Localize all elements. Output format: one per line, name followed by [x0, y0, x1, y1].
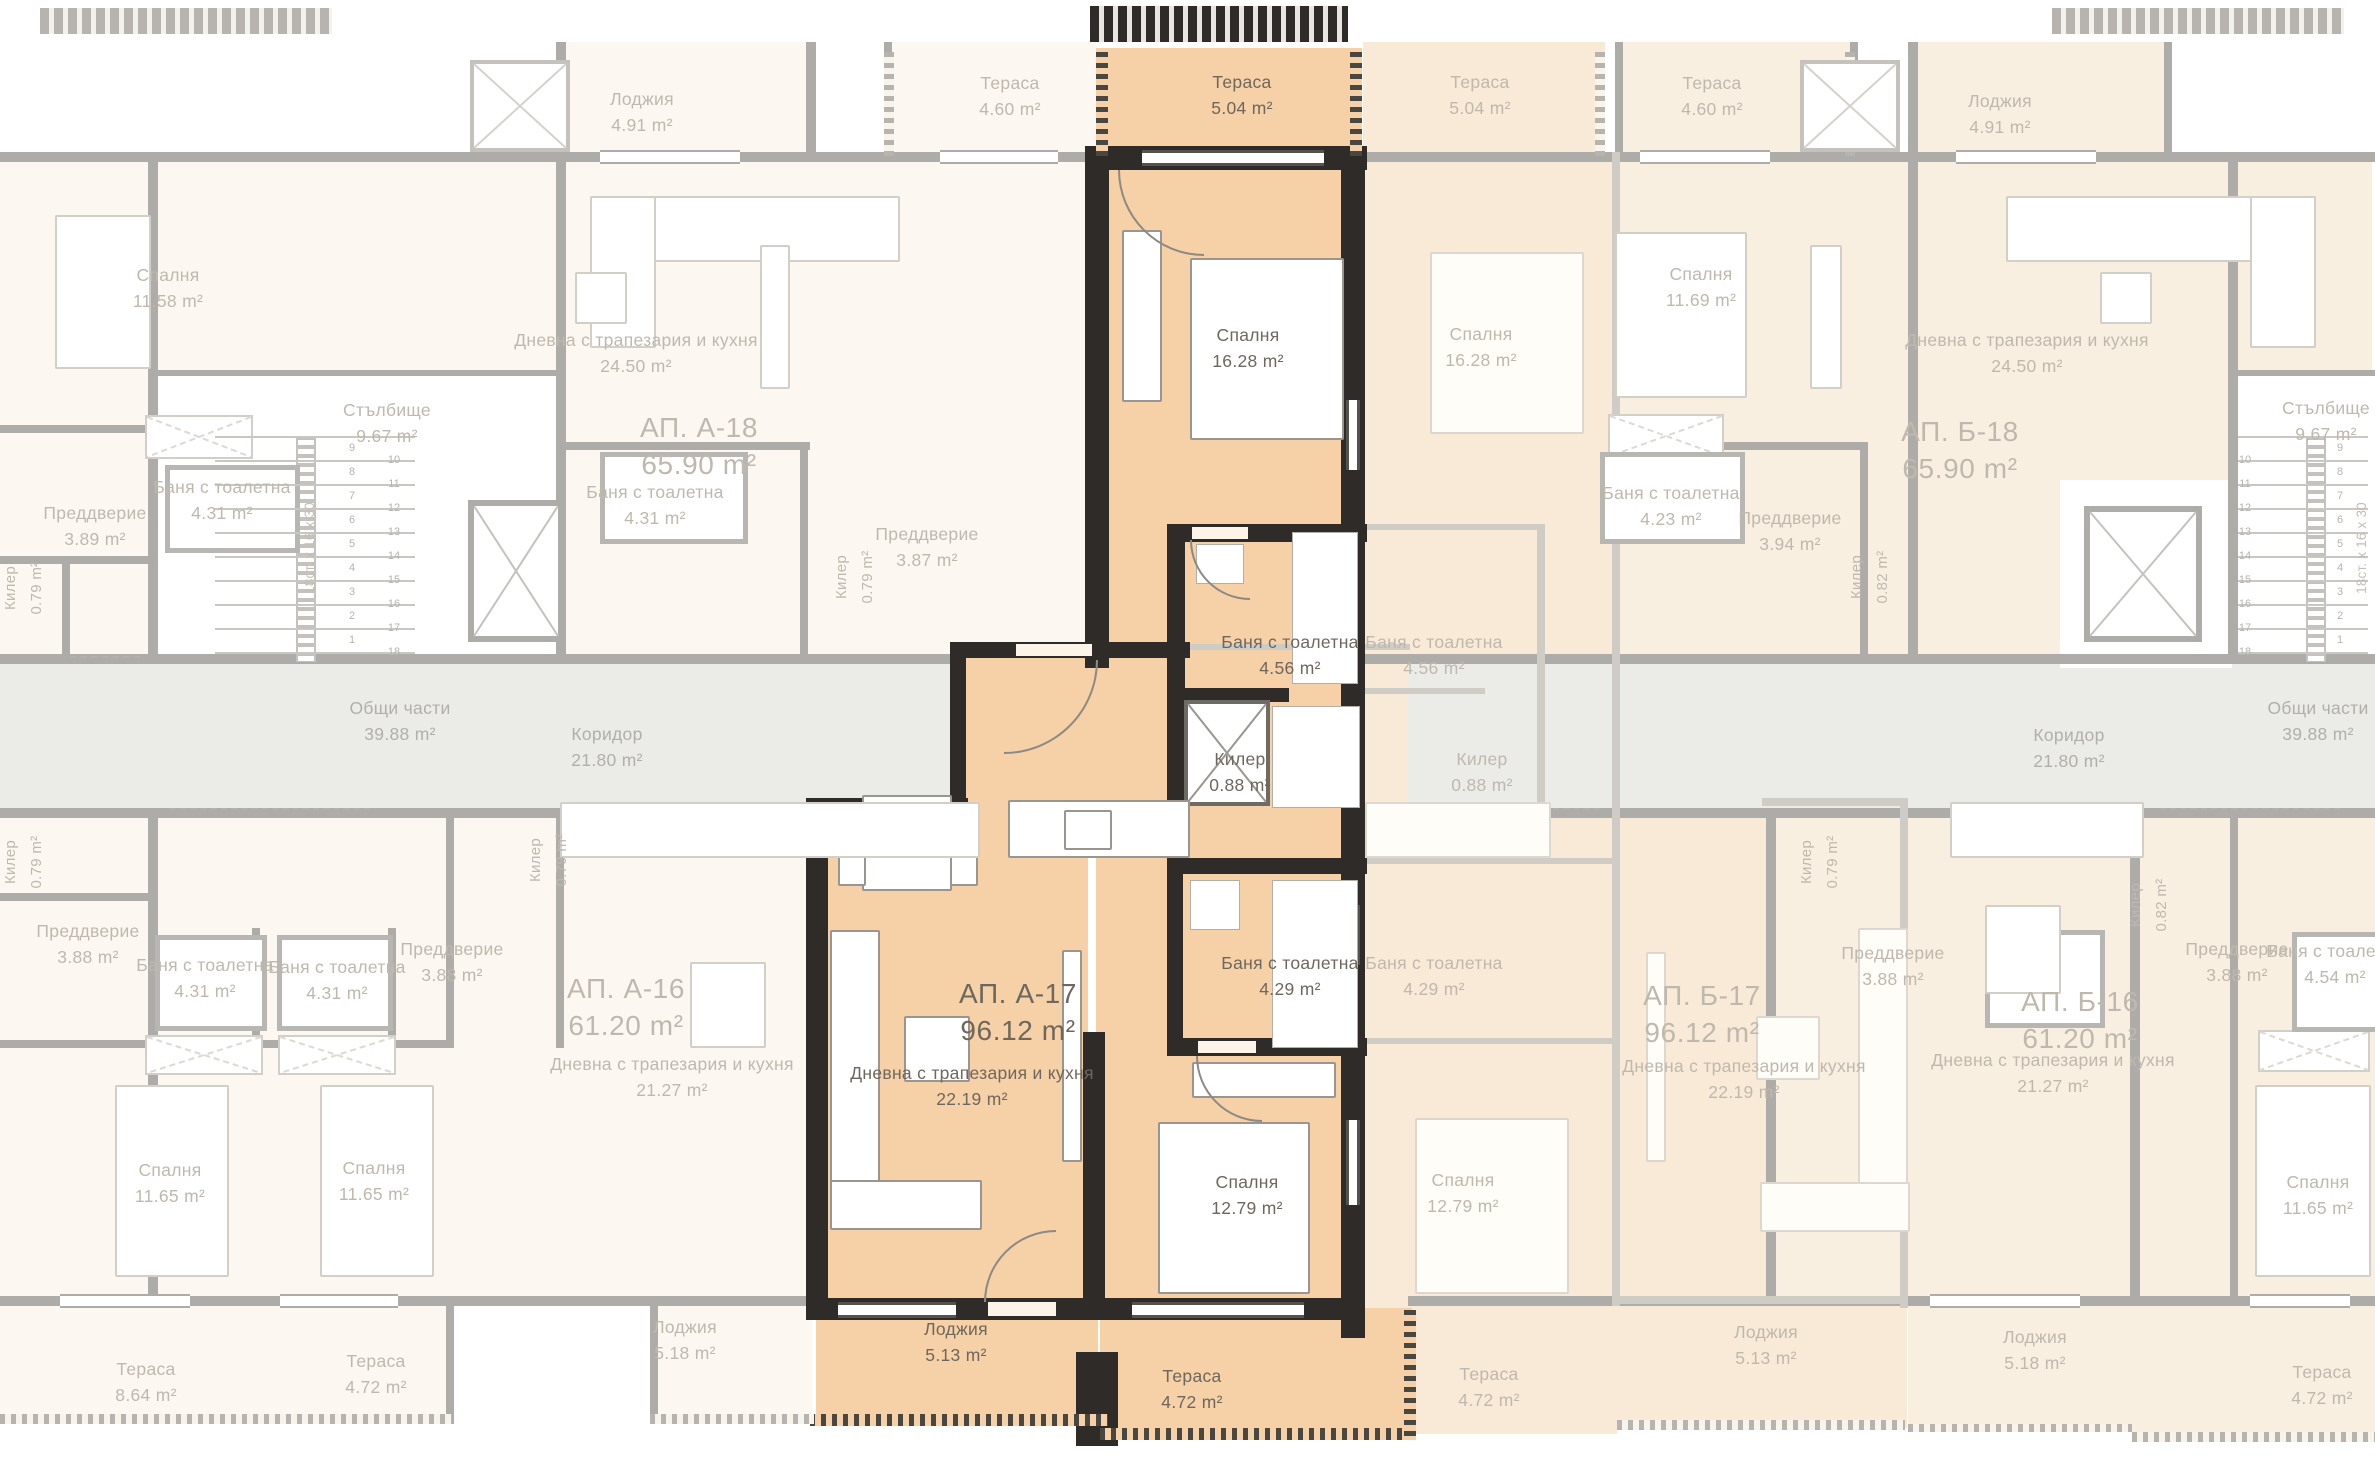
stair-tread: [2238, 628, 2368, 630]
room-label: АП. А-1661.20 m²: [567, 970, 685, 1044]
window: [60, 1294, 190, 1308]
stair-step-number: 11: [2239, 478, 2250, 490]
wardrobe: [2258, 1030, 2370, 1072]
corridor-band-left: [0, 662, 952, 810]
stair-step-number: 5: [2337, 538, 2343, 550]
room-label: Спалня11.58 m²: [133, 262, 203, 314]
room-label: Килер0.82 m²: [2123, 879, 2175, 932]
region-ghost-entry: [1365, 662, 1410, 810]
stair-step-number: 15: [2239, 574, 2251, 586]
stair-step-number: 17: [388, 622, 400, 634]
elevator-shaft: [468, 500, 564, 642]
stair-dimension-note: 18ст. х 16 х 30: [2349, 502, 2375, 594]
room-label: Дневна с трапезария и кухня22.19 m²: [850, 1060, 1094, 1112]
floor-plan-canvas: 9876543211011121314151617189876543211011…: [0, 0, 2375, 1484]
stair-tread: [215, 604, 415, 606]
room-label: Баня с тоалетна4.31 m²: [586, 479, 723, 531]
shaft: [470, 60, 570, 152]
room-label: АП. Б-1865.90 m²: [1901, 413, 2019, 487]
stair-step-number: 2: [349, 610, 355, 622]
room-label: АП. А-1796.12 m²: [959, 975, 1077, 1049]
room-label: Коридор21.80 m²: [2033, 722, 2104, 774]
room-label: Преддверие3.94 m²: [1738, 505, 1841, 557]
room-label: Лоджия5.18 m²: [2003, 1324, 2067, 1376]
room-label: Стълбище9.67 m²: [343, 397, 431, 449]
room-label: Тераса4.72 m²: [1161, 1363, 1222, 1415]
room-label: Баня с тоалетна4.29 m²: [1221, 950, 1358, 1002]
room-label: Тераса4.60 m²: [1681, 70, 1742, 122]
stair-step-number: 4: [349, 562, 355, 574]
stair-step-number: 3: [349, 586, 355, 598]
room-label: Баня с тоалетна4.54 m²: [2266, 938, 2375, 990]
stair-step-number: 12: [2239, 502, 2251, 514]
stair-step-number: 18: [2239, 646, 2251, 658]
stair-step-number: 16: [388, 598, 400, 610]
stair-step-number: 4: [2337, 562, 2343, 574]
region-loggia-a18: [556, 42, 812, 154]
stair-step-number: 1: [349, 634, 355, 646]
stair-tread: [2238, 484, 2368, 486]
room-label: Лоджия5.13 m²: [924, 1316, 988, 1368]
dashed-line: [170, 808, 370, 810]
stair-tread: [215, 460, 415, 462]
shaft: [1800, 60, 1900, 152]
stair-tread: [2238, 460, 2368, 462]
stair-step-number: 8: [349, 466, 355, 478]
room-label: Дневна с трапезария и кухня21.27 m²: [550, 1051, 794, 1103]
room-label: Преддверие3.89 m²: [43, 500, 146, 552]
stair-step-number: 16: [2239, 598, 2251, 610]
room-label: Тераса4.60 m²: [979, 70, 1040, 122]
room-label: Баня с тоалетна4.56 m²: [1221, 629, 1358, 681]
stair-step-number: 13: [2239, 526, 2251, 538]
building-edge-hatch-center: [1090, 6, 1348, 42]
room-label: Спалня11.69 m²: [1666, 261, 1736, 313]
room-label: Дневна с трапезария и кухня21.27 m²: [1931, 1047, 2175, 1099]
stair-step-number: 10: [2239, 454, 2251, 466]
stair-step-number: 11: [388, 478, 399, 490]
room-label: Баня с тоалетна4.31 m²: [268, 954, 405, 1006]
room-label: Баня с тоалетна4.56 m²: [1365, 629, 1502, 681]
stair-step-number: 15: [388, 574, 400, 586]
room-label: Спалня11.65 m²: [2283, 1169, 2353, 1221]
sofa: [2250, 196, 2316, 348]
building-edge-hatch-left: [40, 8, 332, 34]
window: [2250, 1294, 2350, 1308]
stair-step-number: 6: [349, 514, 355, 526]
apartment-a18-hotspot[interactable]: [556, 152, 1086, 652]
room-label: Преддверие3.88 m²: [400, 936, 503, 988]
region-loggia-b18: [1908, 42, 2168, 154]
dashed-line: [70, 656, 140, 658]
railing: [2132, 1432, 2375, 1442]
room-label: Спалня12.79 m²: [1427, 1167, 1498, 1219]
stair-tread: [2238, 604, 2368, 606]
apartment-b18-hotspot[interactable]: [1617, 152, 2227, 652]
room-label: Дневна с трапезария и кухня24.50 m²: [1905, 327, 2149, 379]
room-label: Тераса4.72 m²: [345, 1348, 406, 1400]
room-label: Лоджия4.91 m²: [610, 86, 674, 138]
building-edge-hatch-right: [2052, 8, 2344, 34]
room-label: Баня с тоалетна4.31 m²: [153, 474, 290, 526]
room-label: Преддверие3.88 m²: [1841, 940, 1944, 992]
room-label: Общи части39.88 m²: [349, 695, 450, 747]
stair-step-number: 18: [388, 646, 400, 658]
room-label: Спалня11.65 m²: [339, 1155, 409, 1207]
corridor-band-right: [1408, 662, 2375, 810]
room-label: Спалня12.79 m²: [1211, 1169, 1282, 1221]
room-label: Спалня11.65 m²: [135, 1157, 205, 1209]
railing: [0, 1414, 452, 1424]
room-label: Лоджия5.18 m²: [653, 1314, 717, 1366]
stair-step-number: 14: [2239, 550, 2251, 562]
stair-step-number: 12: [388, 502, 400, 514]
railing: [1595, 52, 1605, 156]
room-label: Дневна с трапезария и кухня24.50 m²: [514, 327, 758, 379]
stair-dimension-note: 18ст. х 16 х 30: [297, 502, 323, 594]
window: [280, 1294, 398, 1308]
room-label: Килер0.88 m²: [1451, 746, 1512, 798]
railing: [650, 1414, 814, 1424]
room-label: АП. Б-1661.20 m²: [2021, 983, 2139, 1057]
railing: [1908, 1424, 2132, 1432]
stair-tread: [215, 652, 415, 654]
stair-step-number: 3: [2337, 586, 2343, 598]
room-label: Тераса4.72 m²: [2291, 1359, 2352, 1411]
stair-tread: [2238, 652, 2368, 654]
region-a18-west: [150, 152, 556, 374]
stair-step-number: 14: [388, 550, 400, 562]
stair-step-number: 17: [2239, 622, 2251, 634]
room-label: Килер0.88 m²: [1209, 746, 1270, 798]
room-label: АП. А-1865.90 m²: [640, 409, 758, 483]
stair-step-number: 6: [2337, 514, 2343, 526]
room-label: Килер0.79 m²: [0, 562, 50, 615]
room-label: Тераса8.64 m²: [115, 1356, 176, 1408]
stair-step-number: 5: [349, 538, 355, 550]
window: [1930, 1294, 2080, 1308]
room-label: Стълбище9.67 m²: [2282, 395, 2370, 447]
room-label: Лоджия5.13 m²: [1734, 1319, 1798, 1371]
kitchen-counter: [1365, 802, 1551, 858]
room-label: Общи части39.88 m²: [2267, 695, 2368, 747]
stair-step-number: 8: [2337, 466, 2343, 478]
room-label: АП. Б-1796.12 m²: [1643, 977, 1761, 1051]
room-label: Лоджия4.91 m²: [1968, 88, 2032, 140]
room-label: Тераса5.04 m²: [1211, 69, 1272, 121]
stair-step-number: 7: [2337, 490, 2343, 502]
stair-step-number: 7: [349, 490, 355, 502]
room-label: Тераса5.04 m²: [1449, 69, 1510, 121]
room-label: Преддверие3.87 m²: [875, 521, 978, 573]
dashed-line: [2160, 808, 2340, 810]
room-label: Баня с тоалетна4.23 m²: [1602, 480, 1739, 532]
room-label: Коридор21.80 m²: [571, 721, 642, 773]
stair-step-number: 2: [2337, 610, 2343, 622]
stair-tread: [215, 628, 415, 630]
room-label: Спалня16.28 m²: [1212, 322, 1283, 374]
room-label: Дневна с трапезария и кухня22.19 m²: [1622, 1053, 1866, 1105]
stair-step-number: 1: [2337, 634, 2343, 646]
room-label: Спалня16.28 m²: [1445, 321, 1516, 373]
room-label: Килер0.79 m²: [829, 551, 881, 604]
room-label: Килер0.79 m²: [0, 836, 50, 889]
stair-step-number: 10: [388, 454, 400, 466]
room-label: Килер0.79 m²: [523, 834, 575, 887]
stair-step-number: 13: [388, 526, 400, 538]
room-label: Килер0.82 m²: [1844, 551, 1896, 604]
railing: [1404, 1310, 1416, 1440]
room-label: Тераса4.72 m²: [1458, 1361, 1519, 1413]
room-label: Баня с тоалетна4.31 m²: [136, 952, 273, 1004]
room-label: Баня с тоалетна4.29 m²: [1365, 950, 1502, 1002]
railing: [1617, 1420, 1905, 1430]
room-label: Килер0.79 m²: [1794, 836, 1846, 889]
room-label: Преддверие3.88 m²: [36, 918, 139, 970]
